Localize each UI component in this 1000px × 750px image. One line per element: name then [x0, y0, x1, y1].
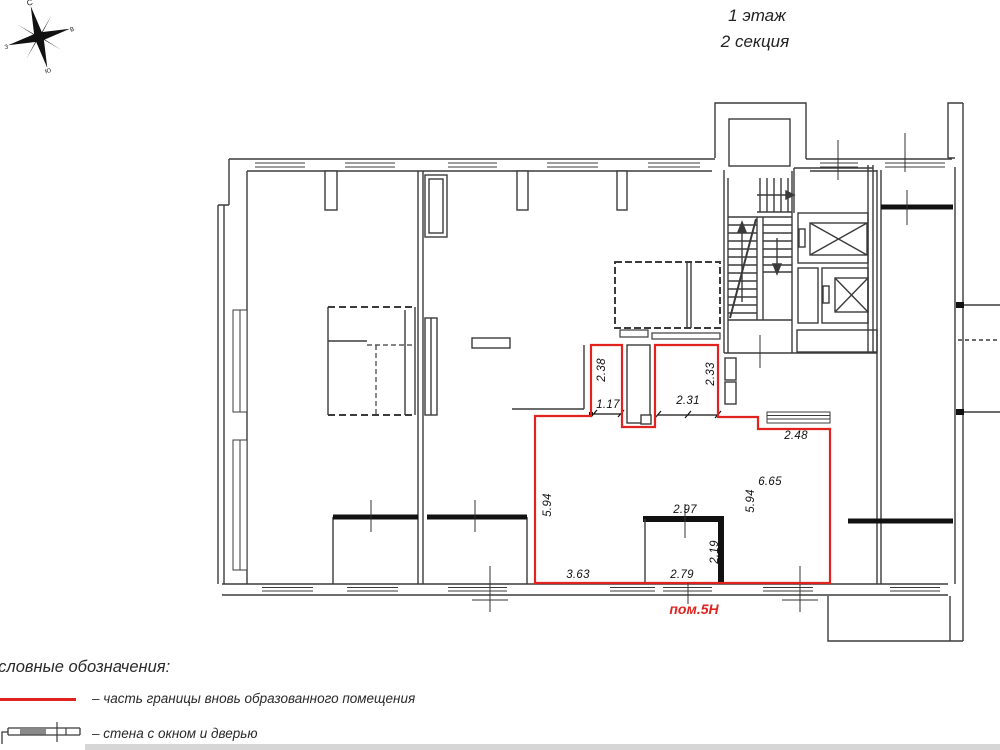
dimension-label-inner-wall-width: 2.97 [673, 504, 697, 516]
compass-west-label: З [4, 44, 9, 51]
floor-plan-page: С В Ю З 1 этаж 2 секция 2.38 1.17 2.31 2… [0, 0, 1000, 750]
elevator-shafts [794, 165, 873, 353]
wall-stubs [325, 171, 627, 210]
dimension-label-left-height: 5.94 [542, 493, 554, 517]
dimension-label-right-shaft-height: 2.33 [705, 362, 717, 386]
plan-title-floor: 1 этаж [677, 6, 837, 26]
compass-east-label: В [70, 27, 75, 34]
elevator-1 [798, 213, 868, 263]
compass-north-label: С [26, 0, 34, 8]
vent-shaft-room [615, 262, 720, 339]
floor-plan-drawing [0, 0, 1000, 750]
bathroom-partitions [328, 307, 415, 415]
legend-red-boundary-symbol [0, 698, 76, 701]
compass-south-label: Ю [45, 68, 52, 74]
dimension-label-inner-wall-height: 2.19 [709, 540, 721, 564]
dimension-label-room-width: 6.65 [758, 476, 782, 488]
dimension-label-opening-width: 1.17 [596, 399, 620, 411]
dimension-label-shaft-height: 2.38 [596, 358, 608, 382]
legend-wall-window-door-symbol [0, 720, 88, 750]
legend-heading: Условные обозначения: [0, 658, 170, 677]
dimension-label-top-right-width: 2.48 [784, 430, 808, 442]
dimension-label-room-height: 5.94 [745, 489, 757, 513]
legend-item-boundary: – часть границы вновь образованного поме… [92, 691, 415, 706]
legend-item-wall: – стена с окном и дверью [92, 726, 258, 741]
room-label-5n: пом.5Н [669, 601, 718, 617]
staircase [715, 103, 877, 404]
compass-rose: С В Ю З [2, 0, 76, 74]
window-symbols [233, 163, 945, 591]
dimension-label-bottom-left-width: 3.63 [566, 569, 590, 581]
red-boundary [535, 345, 830, 583]
dimension-label-hall-opening: 2.31 [676, 395, 700, 407]
horizontal-scrollbar[interactable] [85, 744, 1000, 750]
dimension-label-bottom-center-width: 2.79 [670, 569, 694, 581]
elevator-2 [798, 268, 868, 323]
plan-title-section: 2 секция [675, 32, 835, 52]
